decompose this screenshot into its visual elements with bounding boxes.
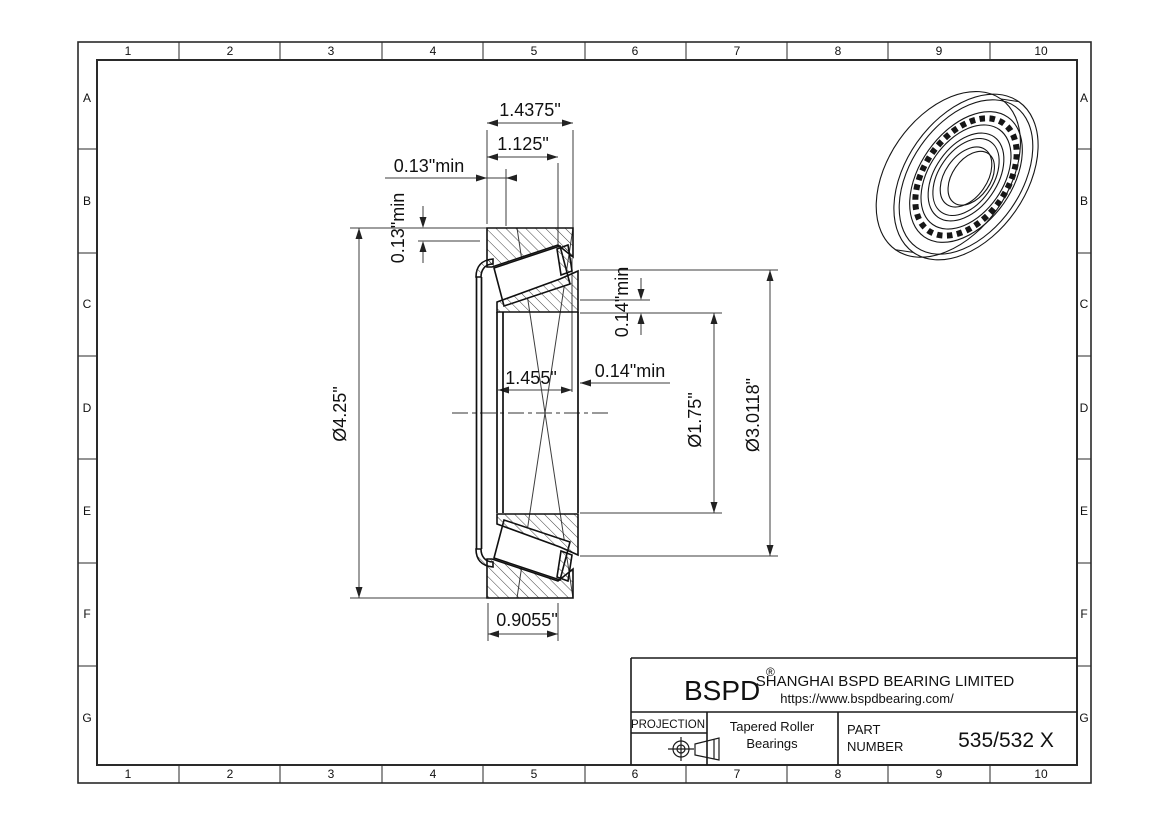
zone-row-label: B xyxy=(1080,194,1088,208)
zone-col-label: 8 xyxy=(835,44,842,58)
zone-row-label: F xyxy=(83,607,90,621)
zone-col-label: 7 xyxy=(734,767,741,781)
drawing-sheet: 1 2 3 4 5 6 7 8 9 10 1 2 3 4 5 6 7 8 9 1… xyxy=(0,0,1169,826)
dim-front-clearance-radial: 0.13"min xyxy=(388,193,408,263)
zone-row-label: B xyxy=(83,194,91,208)
zone-col-label: 3 xyxy=(328,44,335,58)
dim-front-clearance-axial: 0.13"min xyxy=(394,156,464,176)
part-label-line2: NUMBER xyxy=(847,739,903,754)
zone-row-label: E xyxy=(83,504,91,518)
zone-col-label: 4 xyxy=(430,767,437,781)
part-label-line1: PART xyxy=(847,722,881,737)
zone-col-label: 9 xyxy=(936,44,943,58)
zone-col-label: 1 xyxy=(125,44,132,58)
dim-outer-diameter: Ø4.25" xyxy=(330,386,350,441)
dim-cone-width: 1.125" xyxy=(497,134,548,154)
zone-row-label: F xyxy=(1080,607,1087,621)
zone-col-label: 6 xyxy=(632,767,639,781)
dim-inner-width: 1.455" xyxy=(505,368,556,388)
zone-col-label: 9 xyxy=(936,767,943,781)
zone-row-label: C xyxy=(1080,297,1089,311)
zone-row-label: E xyxy=(1080,504,1088,518)
zone-col-label: 10 xyxy=(1034,767,1048,781)
zone-col-label: 8 xyxy=(835,767,842,781)
zone-col-label: 5 xyxy=(531,767,538,781)
dim-overall-width: 1.4375" xyxy=(499,100,560,120)
dim-bore-diameter: Ø1.75" xyxy=(685,392,705,447)
zone-col-label: 1 xyxy=(125,767,132,781)
zone-col-label: 4 xyxy=(430,44,437,58)
engineering-drawing: 1 2 3 4 5 6 7 8 9 10 1 2 3 4 5 6 7 8 9 1… xyxy=(0,0,1169,826)
company-website: https://www.bspdbearing.com/ xyxy=(780,691,954,706)
projection-label: PROJECTION xyxy=(631,719,705,731)
part-number-value: 535/532 X xyxy=(958,729,1054,752)
zone-row-label: A xyxy=(83,91,91,105)
zone-col-label: 3 xyxy=(328,767,335,781)
zone-row-label: D xyxy=(83,401,92,415)
zone-row-label: C xyxy=(83,297,92,311)
dim-back-clearance-radial: 0.14"min xyxy=(612,267,632,337)
zone-row-label: A xyxy=(1080,91,1088,105)
zone-row-label: G xyxy=(82,711,91,725)
dim-cup-width: 0.9055" xyxy=(496,610,557,630)
product-type-line2: Bearings xyxy=(746,736,798,751)
zone-col-label: 6 xyxy=(632,44,639,58)
zone-row-label: G xyxy=(1079,711,1088,725)
company-name: SHANGHAI BSPD BEARING LIMITED xyxy=(756,673,1015,690)
zone-col-label: 2 xyxy=(227,767,234,781)
product-type-line1: Tapered Roller xyxy=(730,719,815,734)
dim-back-clearance-axial: 0.14"min xyxy=(595,361,665,381)
company-logo: BSPD xyxy=(684,675,760,706)
zone-row-label: D xyxy=(1080,401,1089,415)
dim-cone-backface-diameter: Ø3.0118" xyxy=(743,378,763,452)
zone-col-label: 2 xyxy=(227,44,234,58)
zone-col-label: 10 xyxy=(1034,44,1048,58)
zone-col-label: 5 xyxy=(531,44,538,58)
zone-col-label: 7 xyxy=(734,44,741,58)
